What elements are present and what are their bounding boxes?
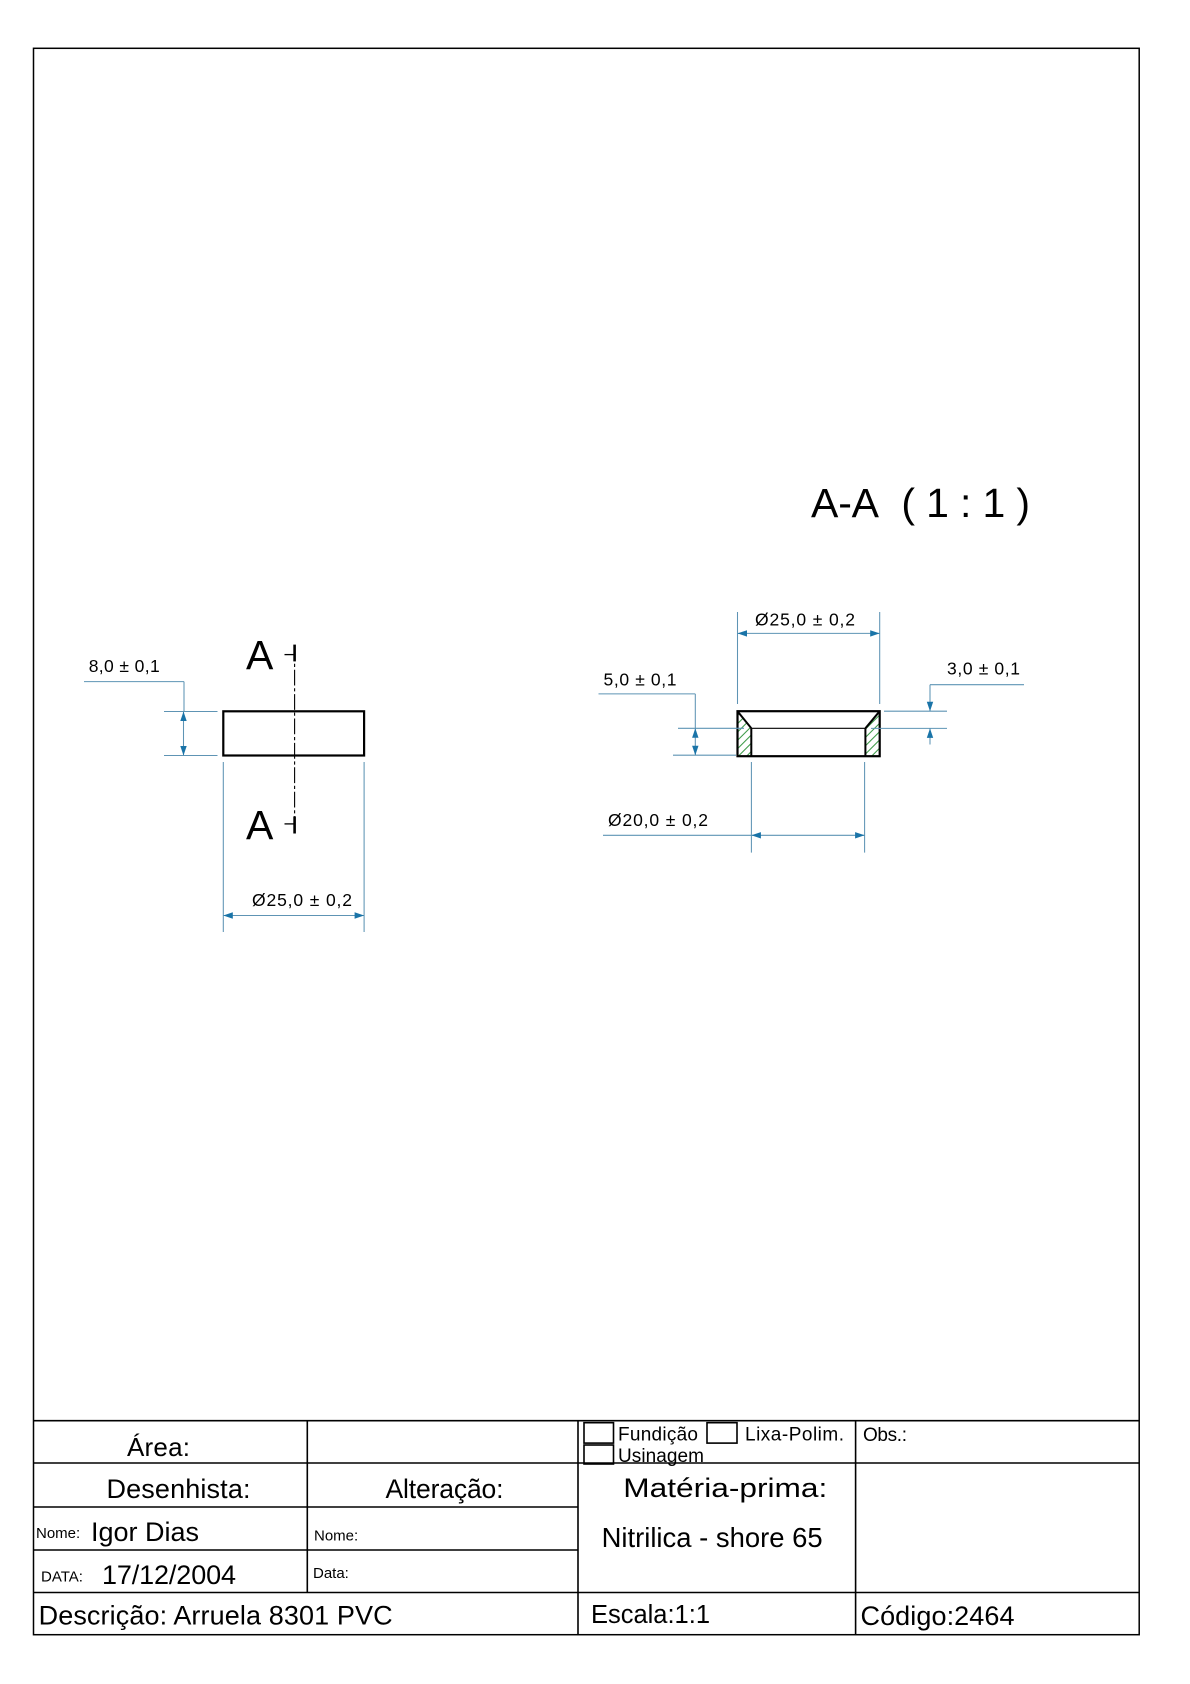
svg-text:8,0 ± 0,1: 8,0 ± 0,1 <box>89 656 160 676</box>
svg-text:Ø25,0 ± 0,2: Ø25,0 ± 0,2 <box>252 890 352 910</box>
svg-text:3,0 ± 0,1: 3,0 ± 0,1 <box>947 659 1020 679</box>
svg-text:Descrição: Arruela 8301 PVC: Descrição: Arruela 8301 PVC <box>39 1601 393 1631</box>
svg-text:5,0 ± 0,1: 5,0 ± 0,1 <box>604 670 677 690</box>
svg-text:Fundição: Fundição <box>618 1425 698 1446</box>
svg-text:A: A <box>246 802 274 848</box>
svg-text:Nitrilica - shore 65: Nitrilica - shore 65 <box>602 1522 823 1553</box>
svg-text:Alteração:: Alteração: <box>386 1474 504 1504</box>
svg-text:Área:: Área: <box>127 1432 190 1462</box>
svg-text:Igor Dias: Igor Dias <box>91 1517 199 1547</box>
svg-text:A-A ( 1 : 1 ): A-A ( 1 : 1 ) <box>811 480 1030 526</box>
svg-text:Matéria-prima:: Matéria-prima: <box>623 1473 827 1503</box>
svg-text:Nome:: Nome: <box>314 1527 358 1544</box>
svg-text:17/12/2004: 17/12/2004 <box>102 1560 236 1590</box>
svg-text:Código:2464: Código:2464 <box>861 1601 1015 1631</box>
svg-text:Obs.:: Obs.: <box>863 1425 907 1446</box>
svg-text:Desenhista:: Desenhista: <box>107 1474 251 1504</box>
svg-text:Lixa-Polim.: Lixa-Polim. <box>745 1425 844 1446</box>
svg-text:Ø25,0 ± 0,2: Ø25,0 ± 0,2 <box>755 609 855 629</box>
svg-text:A: A <box>246 632 274 678</box>
svg-text:Usinagem: Usinagem <box>618 1446 704 1467</box>
svg-text:DATA:: DATA: <box>41 1569 83 1586</box>
svg-text:Ø20,0 ± 0,2: Ø20,0 ± 0,2 <box>608 810 708 830</box>
svg-text:Escala:1:1: Escala:1:1 <box>591 1601 710 1629</box>
svg-text:Nome:: Nome: <box>36 1525 80 1542</box>
svg-text:Data:: Data: <box>313 1565 349 1582</box>
